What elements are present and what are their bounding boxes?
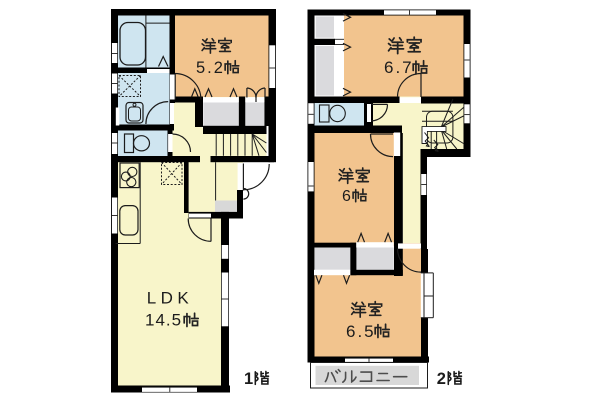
svg-text:LDK: LDK bbox=[147, 289, 194, 308]
svg-text:5.2: 5.2 bbox=[196, 59, 225, 77]
svg-text:2: 2 bbox=[437, 370, 446, 388]
svg-text:1: 1 bbox=[244, 370, 253, 388]
svg-text:6.5: 6.5 bbox=[346, 322, 376, 341]
svg-text:6.7: 6.7 bbox=[384, 58, 414, 77]
svg-text:6: 6 bbox=[342, 188, 351, 205]
svg-text:14.5: 14.5 bbox=[145, 311, 182, 330]
